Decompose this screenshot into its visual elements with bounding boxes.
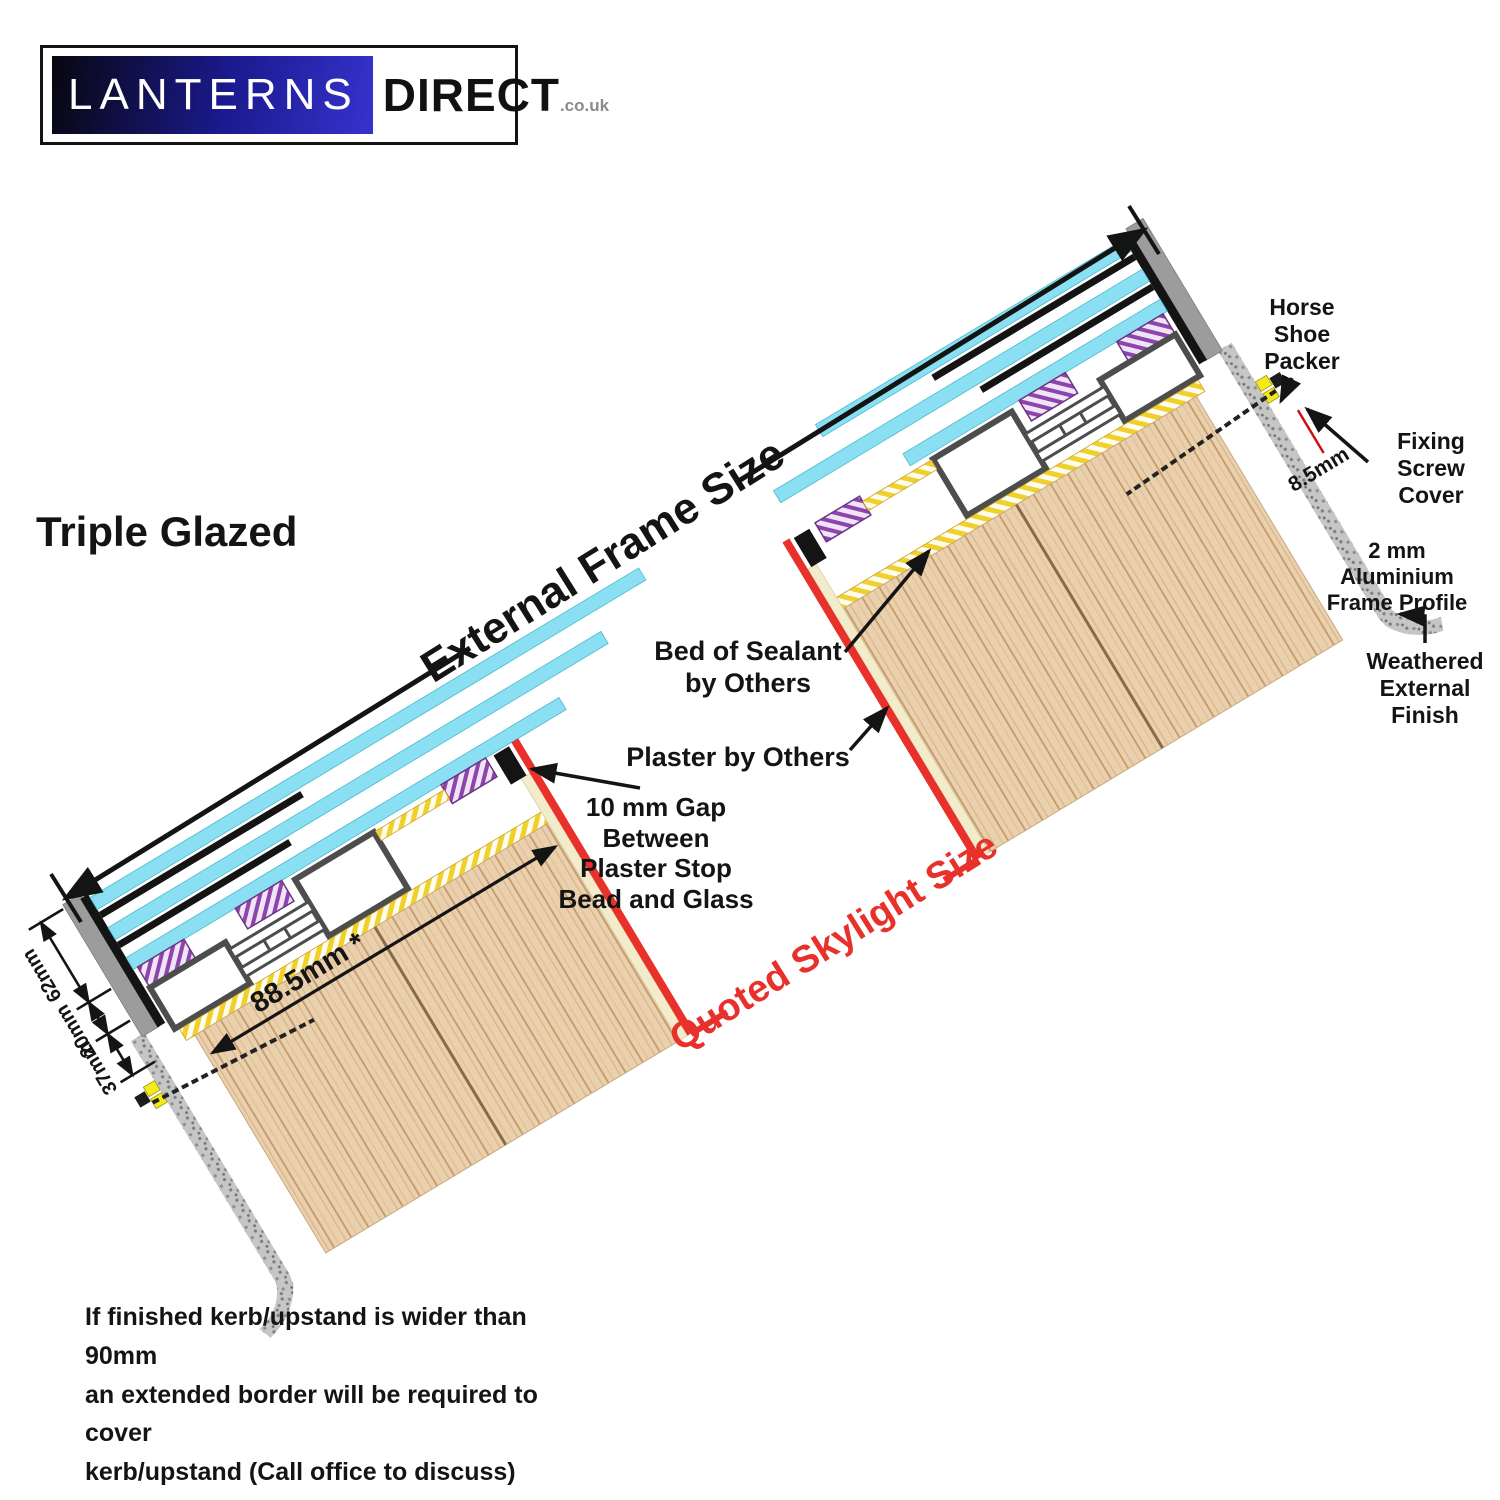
profile-offset-tick bbox=[1298, 410, 1324, 453]
weathered-finish-label: Weathered External Finish bbox=[1362, 648, 1488, 729]
plaster-by-others-label: Plaster by Others bbox=[618, 742, 858, 774]
diagram-title: Triple Glazed bbox=[36, 508, 297, 556]
horse-shoe-packer-label: Horse Shoe Packer bbox=[1240, 294, 1364, 375]
bed-of-sealant-label: Bed of Sealant by Others bbox=[648, 636, 848, 700]
fixing-screw-cover-label: Fixing Screw Cover bbox=[1372, 428, 1490, 509]
sealant-tape bbox=[863, 460, 937, 511]
thermal-break-clip bbox=[284, 928, 290, 938]
kerb-upstand-wood bbox=[843, 396, 1342, 852]
thermal-break-clip bbox=[1060, 425, 1066, 435]
diagram-canvas: LANTERNS DIRECT .co.uk bbox=[0, 0, 1500, 1500]
kerb-footnote: If finished kerb/upstand is wider than 9… bbox=[85, 1298, 605, 1492]
glazing-gasket bbox=[815, 496, 871, 542]
thermal-break-clip bbox=[264, 940, 270, 950]
thermal-break-clip bbox=[1080, 413, 1086, 423]
aluminium-profile-label: 2 mm Aluminium Frame Profile bbox=[1312, 538, 1482, 616]
plaster-gap-label: 10 mm Gap Between Plaster Stop Bead and … bbox=[556, 792, 756, 915]
